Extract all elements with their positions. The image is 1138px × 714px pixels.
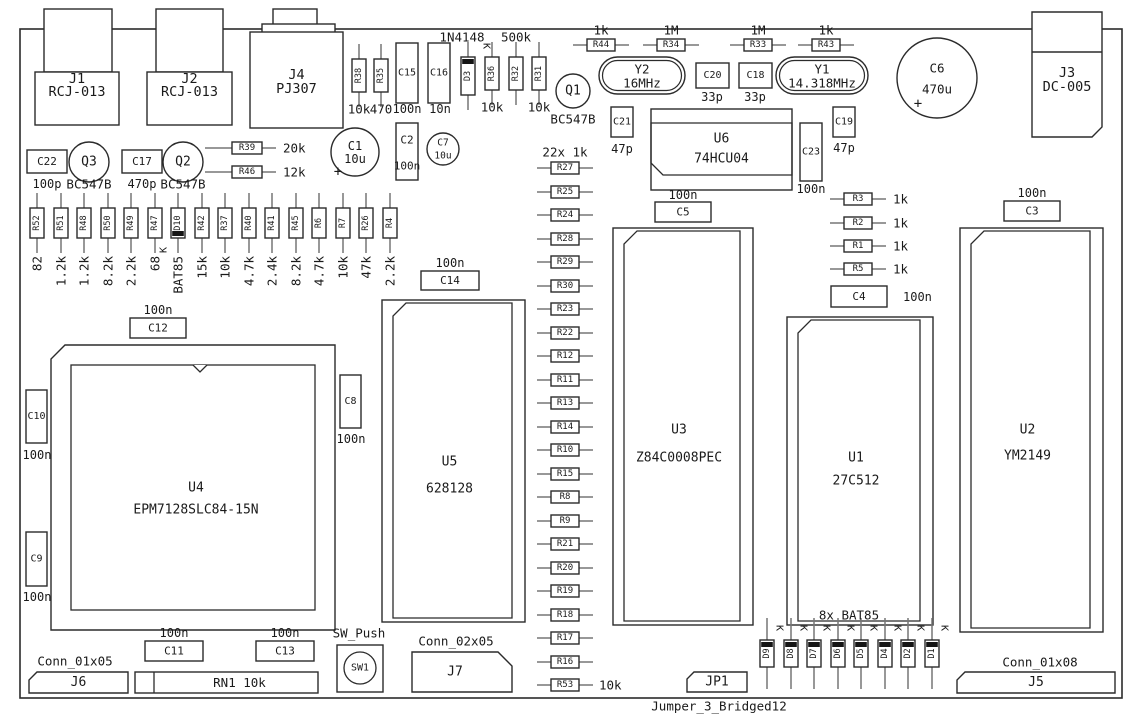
ref-label: C4 [852,290,866,303]
resistor-r50[interactable]: R508.2k [101,193,116,286]
ref-label: R33 [750,40,766,50]
capacitor-c5[interactable]: C5100n [655,188,711,222]
ref-label: R12 [557,351,573,361]
cathode-mark-icon: K [845,625,856,631]
ref-label: C6 [929,61,944,76]
ic-u1[interactable]: U127C512 [787,317,933,625]
value-label: 100p [33,177,62,191]
ref-label: R36 [487,66,497,81]
ref-label: R6 [314,218,324,228]
ref-label: R3 [853,194,864,204]
diode-d5[interactable]: KD5 [854,618,879,689]
ref-label: D7 [809,648,819,658]
ref-label: R40 [244,215,254,230]
capacitor-c7[interactable]: C710u [427,133,459,165]
cathode-band [462,59,474,64]
ic-u3[interactable]: U3Z84C0008PEC [613,228,753,625]
resistor-r23[interactable]: R23 [537,303,593,315]
value-label: 100n [144,303,173,317]
value-label: 100n [1018,186,1047,200]
connector-j6[interactable]: J6 [29,672,128,693]
value-label: 10k [336,256,351,279]
cathode-mark-icon: K [915,625,926,631]
ref-label: R29 [557,257,573,267]
label-conn-02x05: Conn_02x05 [418,634,493,649]
pcb-assembly-diagram: U674HCU04U3Z84C0008PECU127C512U2YM2149U5… [0,0,1138,714]
cathode-mark-icon: K [939,625,950,631]
label-sw-push: SW_Push [333,626,386,641]
value-label: 10k [481,100,504,115]
value-label: 100n [23,448,52,462]
resistor-r45[interactable]: R458.2k [289,193,304,286]
ref-label: R30 [557,281,573,291]
label-conn-01x05: Conn_01x05 [37,654,112,669]
value-label: 14.318MHz [788,76,856,91]
ref-label: R41 [267,215,277,230]
value-label: 8.2k [101,256,116,287]
value-label: 470u [922,82,952,97]
resistor-r46[interactable]: R4612k [205,165,306,180]
value-label: BC547B [160,177,205,192]
resistor-r33[interactable]: R331M [730,23,786,52]
resistor-r27[interactable]: R27 [537,162,593,174]
capacitor-c12[interactable]: C12100n [130,303,186,338]
ref-label: U5 [442,455,458,470]
ref-label: R46 [239,167,255,177]
ref-label: C9 [30,554,42,565]
pcb-canvas: U674HCU04U3Z84C0008PECU127C512U2YM2149U5… [0,0,1138,714]
ref-label: R19 [557,586,573,596]
ref-label: D8 [786,648,796,658]
ref-label: Y1 [814,62,829,77]
ref-label: R9 [560,516,571,526]
ref-label: D3 [463,71,473,81]
switch-sw1[interactable]: SW1 [337,645,383,692]
cathode-band [808,642,820,647]
crystal-y1[interactable]: Y114.318MHz [776,57,868,94]
crystal-y2[interactable]: Y216MHz [599,57,685,94]
value-label: RCJ-013 [49,84,106,100]
ref-label: C23 [802,147,820,158]
ref-label: C8 [344,396,356,407]
resistor-r53[interactable]: R5310k [537,678,622,693]
ref-label: J7 [447,665,463,680]
resistor-r24[interactable]: R24 [537,209,593,221]
ref-label: R39 [239,143,255,153]
cathode-mark-icon: K [798,625,809,631]
value-label: RCJ-013 [161,84,218,100]
value-label: 2.4k [265,256,280,287]
ref-label: C19 [835,117,853,128]
cathode-band [832,642,844,647]
ref-label: C5 [676,206,689,219]
polarity-plus-icon: + [914,96,922,112]
resistor-r28[interactable]: R28 [537,233,593,245]
value-label: PJ307 [276,81,317,97]
cathode-band [879,642,891,647]
capacitor-c14[interactable]: C14100n [421,256,479,290]
resistor-r52[interactable]: R5282 [30,193,45,271]
resistor-r18[interactable]: R18 [537,609,593,621]
resistor-r7[interactable]: R710k [336,193,351,279]
ref-label: Q1 [565,84,581,99]
label-conn-01x08: Conn_01x08 [1002,655,1077,670]
ref-label: C1 [348,139,362,153]
cathode-mark-icon: K [868,625,879,631]
capacitor-c1[interactable]: C110u+ [331,128,379,180]
value-label: 1k [893,262,909,277]
ref-label: C15 [398,68,416,79]
value-label: YM2149 [1004,449,1051,464]
ref-label: SW1 [351,663,369,674]
ref-label: R31 [534,66,544,81]
ref-label: R17 [557,633,573,643]
resistor-r10[interactable]: R10 [537,444,593,456]
value-label: 1k [593,23,609,38]
value-label: 100n [271,626,300,640]
ref-label: R28 [557,234,573,244]
ref-label: C10 [27,411,45,422]
cathode-mark-icon: K [892,625,903,631]
capacitor-c4[interactable]: C4100n [831,286,932,307]
value-label: 100n [903,290,932,304]
ref-label: R15 [557,469,573,479]
resistor-r44[interactable]: R441k [573,23,629,52]
value-label: 470p [128,177,157,191]
ref-label: U4 [188,481,204,496]
ref-label: R48 [79,215,89,230]
ref-label: R50 [103,215,113,230]
value-label: 33p [701,90,723,104]
value-label: 8.2k [289,256,304,287]
ref-label: R26 [361,215,371,230]
transistor-q1[interactable]: Q1BC547B [550,74,595,127]
value-label: 4.7k [242,256,257,287]
ref-label: C12 [148,322,168,335]
ref-label: R22 [557,328,573,338]
ref-label: R11 [557,375,573,385]
ic-u6[interactable]: U674HCU04 [651,109,792,190]
connector-j2[interactable]: J2RCJ-013 [147,9,232,125]
ref-label: JP1 [705,675,728,690]
value-label: 100n [393,102,422,116]
resistor-r47[interactable]: R4768 [148,193,163,271]
value-label: EPM7128SLC84-15N [133,503,258,518]
value-label: 100n [160,626,189,640]
resistor-r21[interactable]: R21 [537,538,593,550]
cathode-mark-icon: K [774,625,785,631]
ref-label: R34 [663,40,679,50]
value-label: 10u [344,152,366,166]
resistor-r43[interactable]: R431k [798,23,854,52]
resistor-r48[interactable]: R481.2k [77,193,92,286]
ref-label: R13 [557,398,573,408]
ref-label: D5 [856,648,866,658]
value-label: 10u [434,151,451,162]
resistor-r8[interactable]: R8 [537,491,593,503]
resistor-network-rn1-10k[interactable]: RN1 10k [135,672,318,693]
value-label: 10k [348,102,371,117]
value-label: 4.7k [312,256,327,287]
ref-label: U2 [1020,423,1036,438]
ref-label: C20 [703,70,721,81]
cathode-band [902,642,914,647]
value-label: 470 [370,102,393,117]
resistor-r11[interactable]: R11 [537,374,593,386]
label-8x-bat85: 8x BAT85 [819,608,879,623]
resistor-r49[interactable]: R492.2k [124,193,139,286]
ic-u2[interactable]: U2YM2149 [960,228,1103,632]
transistor-q2[interactable]: Q2BC547B [160,142,205,192]
ref-label: R53 [557,680,573,690]
cathode-band [761,642,773,647]
ref-label: C14 [440,274,460,287]
resistor-r26[interactable]: R2647k [359,193,374,279]
resistor-r31[interactable]: R3110k [528,42,551,115]
value-label: 100n [797,182,826,196]
capacitor-c21[interactable]: C2147p [611,107,633,156]
ref-label: RN1 10k [213,675,266,690]
value-label: 68 [148,256,163,271]
ref-label: R38 [354,68,364,83]
ref-label: C2 [400,134,413,147]
connector-j7[interactable]: J7 [412,652,512,692]
ic-u4[interactable]: U4EPM7128SLC84-15N [51,345,335,630]
resistor-r5[interactable]: R51k [830,262,909,277]
resistor-r19[interactable]: R19 [537,585,593,597]
value-label: 74HCU04 [694,152,749,167]
ref-label: R5 [853,264,864,274]
connector-j5[interactable]: J5 [957,672,1115,693]
ref-label: R42 [197,215,207,230]
capacitor-c16[interactable]: C1610n [428,43,451,116]
resistor-r22[interactable]: R22 [537,327,593,339]
ref-label: D1 [927,648,937,658]
value-label: 10k [218,256,233,279]
value-label: 10k [528,100,551,115]
ref-label: C3 [1025,205,1038,218]
ref-label: C22 [37,155,57,168]
value-label: 100n [337,432,366,446]
ref-label: C18 [746,70,764,81]
ref-label: R4 [385,218,395,228]
ref-label: Y2 [634,62,649,77]
capacitor-c20[interactable]: C2033p [696,63,729,104]
resistor-r42[interactable]: R4215k [195,193,210,279]
resistor-r12[interactable]: R12 [537,350,593,362]
ref-label: R51 [56,215,66,230]
value-label: 47k [359,256,374,279]
value-label: 2.2k [383,256,398,287]
ref-label: R24 [557,210,573,220]
value-label: 16MHz [623,76,661,91]
value-label: 1M [663,23,678,38]
value-label: 47p [611,142,633,156]
diode-d2[interactable]: KD2 [901,618,926,689]
resistor-r40[interactable]: R404.7k [242,193,257,286]
ref-label: R27 [557,163,573,173]
transistor-q3[interactable]: Q3BC547B [66,142,111,192]
value-label: 47p [833,141,855,155]
value-label: 15k [195,256,210,279]
resistor-r1[interactable]: R11k [830,239,909,254]
diode-d9[interactable]: KD9 [760,618,785,689]
value-label: 1k [893,239,909,254]
capacitor-c11[interactable]: C11100n [145,626,203,661]
resistor-r37[interactable]: R3710k [218,193,233,279]
capacitor-c8[interactable]: C8100n [337,375,366,446]
value-label: 82 [30,256,45,271]
value-label: 10k [599,678,622,693]
value-label: 628128 [426,482,473,497]
value-label: 33p [744,90,766,104]
value-label: DC-005 [1043,79,1092,95]
value-label: 1.2k [77,256,92,287]
ref-label: J6 [71,675,87,690]
cathode-band [172,231,184,236]
ref-label: R20 [557,563,573,573]
ref-label: C21 [613,117,631,128]
ref-label: U6 [714,132,730,147]
cathode-mark-icon: K [159,247,170,253]
value-label: BC547B [66,177,111,192]
resistor-r41[interactable]: R412.4k [265,193,280,286]
diode-d1[interactable]: KD1 [925,618,950,689]
ref-label: D2 [903,648,913,658]
resistor-r35[interactable]: R35470 [370,44,393,117]
resistor-r3[interactable]: R31k [830,192,909,207]
ref-label: R25 [557,187,573,197]
value-label: BC547B [550,112,595,127]
cathode-band [855,642,867,647]
cathode-band [785,642,797,647]
ref-label: R21 [557,539,573,549]
ref-label: R35 [376,68,386,83]
ref-label: J5 [1028,675,1044,690]
value-label: 12k [283,165,306,180]
ref-label: U3 [671,423,687,438]
label-jumper-3-bridged12: Jumper_3_Bridged12 [651,699,786,714]
polarity-plus-icon: + [334,164,342,180]
value-label: 100n [436,256,465,270]
ref-label: Q3 [81,155,97,170]
capacitor-c15[interactable]: C15100n [393,43,422,116]
ref-label: R52 [32,215,42,230]
resistor-r39[interactable]: R3920k [205,141,306,156]
ref-label: D4 [880,648,890,658]
value-label: 10n [429,102,451,116]
resistor-r6[interactable]: R64.7k [312,193,327,286]
value-label: 1k [893,216,909,231]
ref-label: R18 [557,610,573,620]
ref-label: D9 [762,648,772,658]
ref-label: R43 [818,40,834,50]
ref-label: Q2 [175,155,191,170]
value-label: 1M [750,23,765,38]
capacitor-c2[interactable]: C2100n [394,123,421,180]
value-label: 27C512 [833,474,880,489]
resistor-r25[interactable]: R25 [537,186,593,198]
resistor-r29[interactable]: R29 [537,256,593,268]
ref-label: R14 [557,422,573,432]
capacitor-c23[interactable]: C23100n [797,123,826,196]
capacitor-c6[interactable]: C6470u+ [897,38,977,118]
ref-label: D10 [173,215,183,230]
capacitor-c13[interactable]: C13100n [256,626,314,661]
resistor-r9[interactable]: R9 [537,515,593,527]
resistor-r17[interactable]: R17 [537,632,593,644]
diode-d4[interactable]: KD4 [878,618,903,689]
resistor-r20[interactable]: R20 [537,562,593,574]
resistor-r36[interactable]: R3610k [481,42,504,115]
value-label: 100n [669,188,698,202]
value-label: 1N4148 [439,30,484,45]
connector-jp1[interactable]: JP1 [687,672,747,692]
resistor-r32[interactable]: R32500k [501,30,532,106]
resistor-r51[interactable]: R511.2k [54,193,69,286]
connector-j4[interactable]: J4PJ307 [250,9,343,128]
diode-d7[interactable]: KD7 [807,618,832,689]
connector-j1[interactable]: J1RCJ-013 [35,9,119,125]
ref-label: R45 [291,215,301,230]
ref-label: C11 [164,645,184,658]
resistor-r30[interactable]: R30 [537,280,593,292]
capacitor-c9[interactable]: C9100n [23,532,52,604]
resistor-r2[interactable]: R21k [830,216,909,231]
value-label: BAT85 [171,256,186,294]
ref-label: R2 [853,218,864,228]
ref-label: R10 [557,445,573,455]
value-label: 1.2k [54,256,69,287]
ref-label: C16 [430,68,448,79]
ref-label: R7 [338,218,348,228]
ref-label: R37 [220,215,230,230]
capacitor-c22[interactable]: C22100p [27,150,67,191]
capacitor-c10[interactable]: C10100n [23,390,52,462]
diode-d8[interactable]: KD8 [784,618,809,689]
cathode-mark-icon: K [821,625,832,631]
capacitor-c3[interactable]: C3100n [1004,186,1060,221]
resistor-r38[interactable]: R3810k [348,44,371,117]
resistor-r14[interactable]: R14 [537,421,593,433]
ref-label: R32 [511,66,521,81]
resistor-r16[interactable]: R16 [537,656,593,668]
value-label: 500k [501,30,532,45]
resistor-r4[interactable]: R42.2k [383,193,398,286]
ref-label: R23 [557,304,573,314]
ic-u5[interactable]: U5628128 [382,300,525,622]
capacitor-c18[interactable]: C1833p [739,63,772,104]
ref-label: R8 [560,492,571,502]
resistor-r34[interactable]: R341M [643,23,699,52]
resistor-r15[interactable]: R15 [537,468,593,480]
capacitor-c17[interactable]: C17470p [122,150,162,191]
diode-d6[interactable]: KD6 [831,618,856,689]
ref-label: C13 [275,645,295,658]
ref-label: U1 [848,451,864,466]
ref-label: R47 [150,215,160,230]
value-label: 100n [394,160,421,173]
ref-label: R1 [853,241,864,251]
capacitor-c19[interactable]: C1947p [833,107,855,155]
resistor-r13[interactable]: R13 [537,397,593,409]
ref-label: R44 [593,40,609,50]
ref-label: D6 [833,648,843,658]
value-label: 100n [23,590,52,604]
ref-label: C17 [132,155,152,168]
connector-j3[interactable]: J3DC-005 [1032,12,1102,137]
cathode-band [926,642,938,647]
